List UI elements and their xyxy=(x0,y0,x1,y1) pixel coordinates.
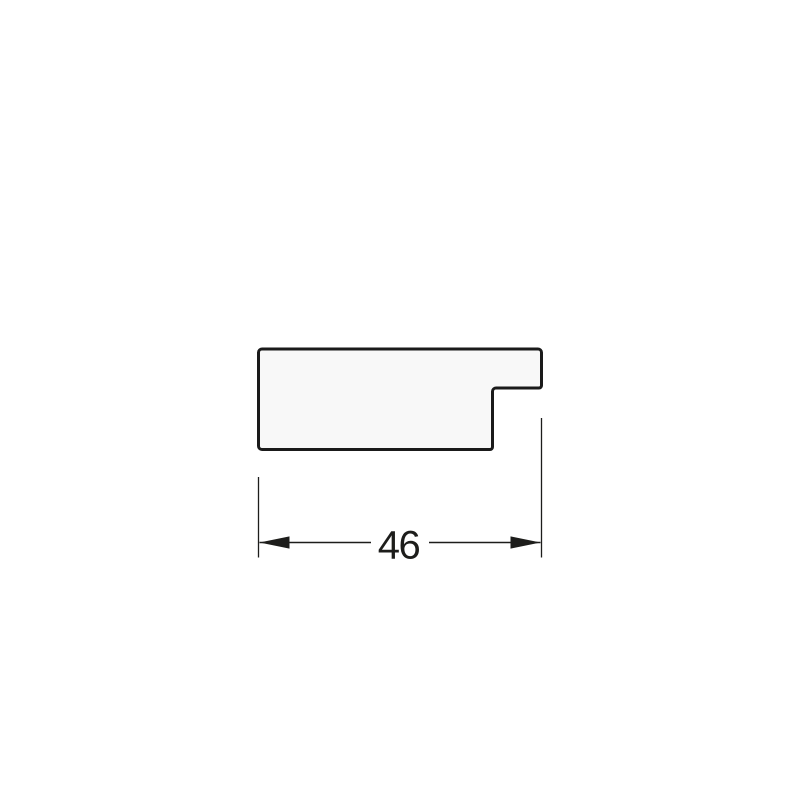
svg-text:46: 46 xyxy=(378,524,420,568)
